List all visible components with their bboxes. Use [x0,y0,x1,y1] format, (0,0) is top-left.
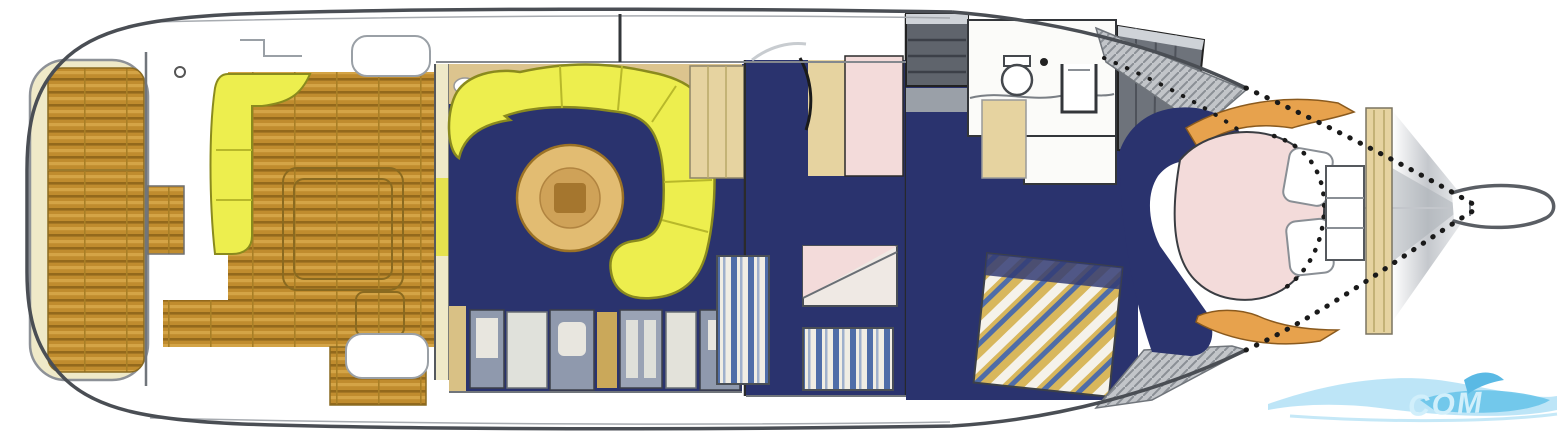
mid-berth [845,56,903,176]
mid-wardrobe [690,66,744,178]
cockpit-seat-stbd [352,36,430,76]
yacht-floorplan-svg: COM [0,0,1560,436]
galley-fridge [507,312,547,388]
bow-bulkhead [1366,108,1392,334]
galley-worktop [666,312,696,388]
galley-sink [558,322,586,356]
toilet-bowl [1002,65,1032,95]
companionway-steps [906,14,968,112]
galley [449,306,742,392]
shower-basin [1062,64,1096,112]
bow-pulpit [1452,186,1554,228]
head-fitting-dot [1040,58,1048,66]
guest-berth-port [717,256,769,384]
guest-berth-diagonal [974,253,1123,397]
yacht-floorplan-image: COM [0,0,1560,436]
head-compartment [968,20,1116,184]
cockpit-teak-port [163,300,233,347]
galley-end-cabinet [449,306,466,392]
watermark-text: COM [1407,386,1485,423]
cockpit-seat-port [346,334,428,378]
galley-counter-wood [597,312,617,388]
head-floor-mat [982,100,1026,178]
cockpit-teak [228,72,437,347]
mid-bed-side [808,60,845,176]
transom-gate-step [148,186,184,254]
forward-hatch [1326,166,1364,260]
stern-cleat [175,67,185,77]
salon-table [517,145,623,251]
watermark: COM [1268,373,1557,424]
salon-entry-steps [435,178,449,256]
